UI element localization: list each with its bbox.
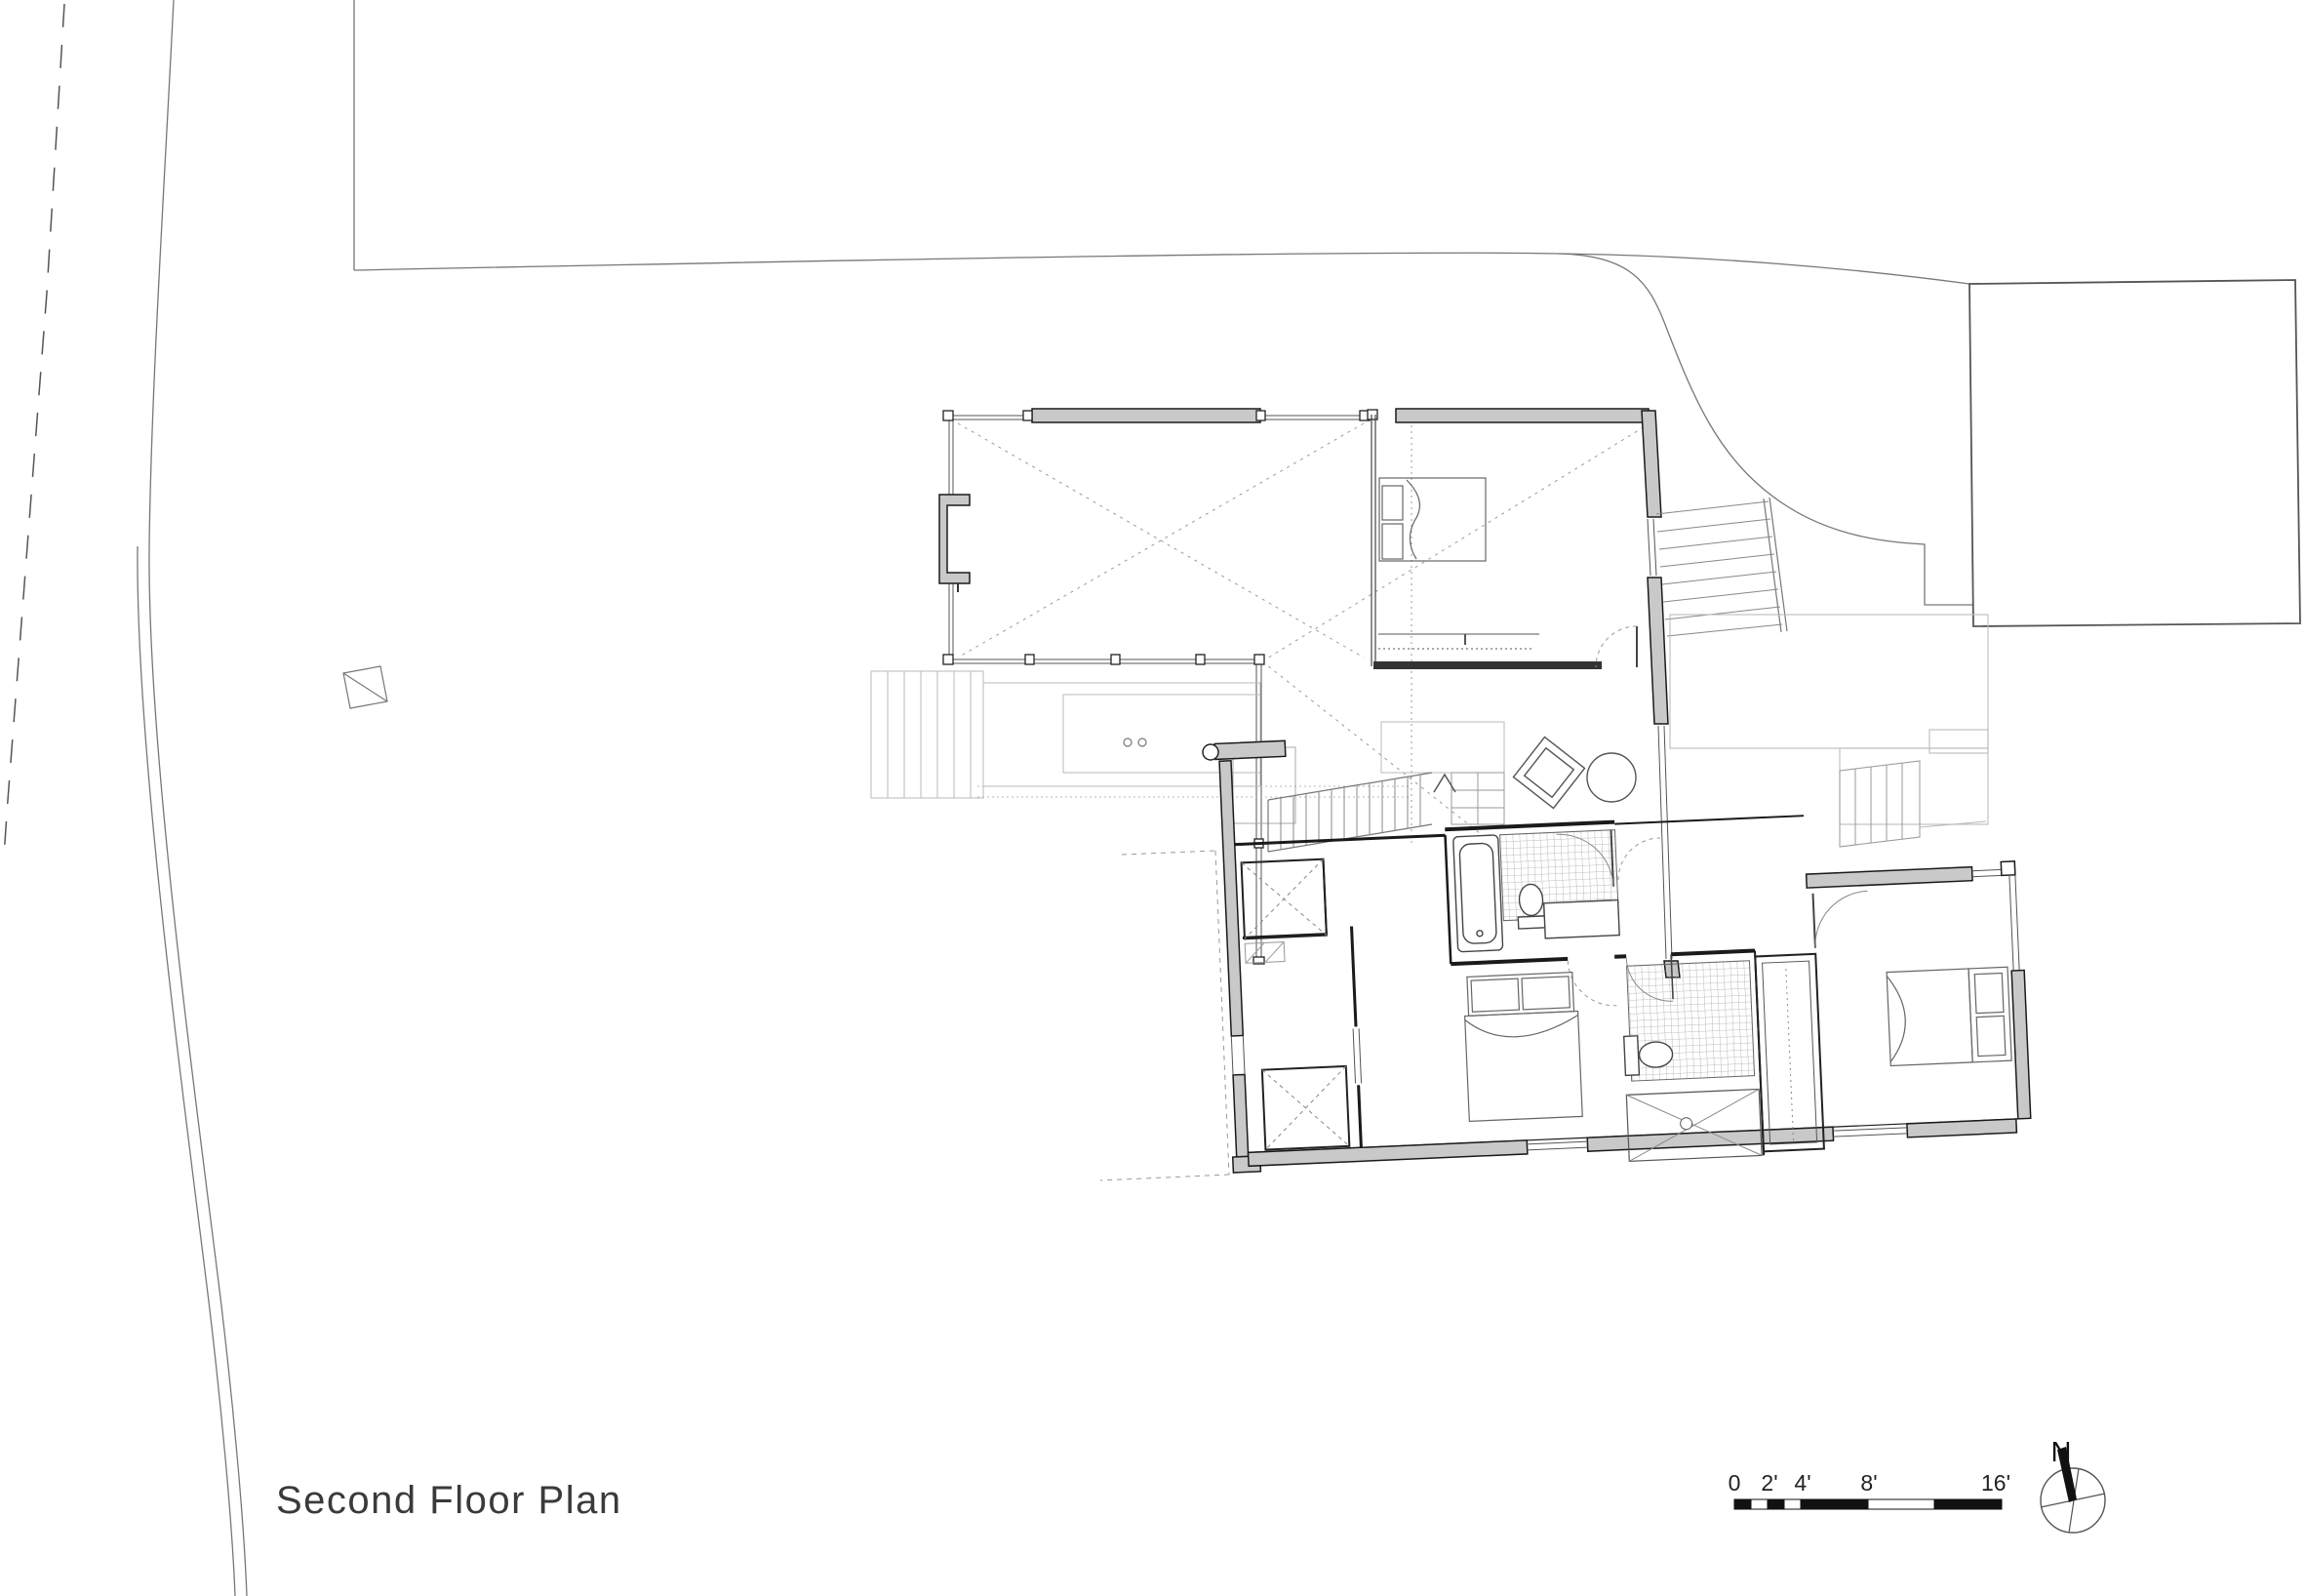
neighbor-building — [1969, 280, 2300, 626]
north-compass-icon: N — [2041, 1437, 2105, 1533]
scale-tick-4: 4' — [1794, 1470, 1810, 1496]
lower-wing — [1214, 709, 2032, 1178]
property-line-dashed — [4, 4, 64, 857]
road-edge-1 — [149, 0, 247, 1596]
bedroom2-door-swing — [1568, 959, 1616, 1008]
vanity — [1544, 900, 1619, 938]
skylight-icon-1 — [1242, 859, 1327, 939]
bathroom-2 — [1620, 951, 1762, 1162]
skylight-icon-2 — [1262, 1066, 1349, 1150]
bedroom3-door — [1812, 891, 1869, 947]
bed-icon — [1379, 478, 1486, 561]
bed-icon — [1463, 973, 1582, 1122]
bedroom-2 — [1462, 959, 1621, 1122]
stair-up-arrow-icon — [1434, 775, 1455, 792]
bedroom-3 — [1812, 885, 2011, 1068]
bedroom1-door — [1596, 626, 1637, 667]
scale-tick-16: 16' — [1981, 1470, 2010, 1496]
exterior-stair — [1656, 498, 1787, 636]
railing-posts — [943, 411, 1370, 964]
floor-plan-sheet: Second Floor Plan 0 2' 4' 8' 16' N — [0, 0, 2306, 1596]
bedroom1-west-wall — [1372, 415, 1375, 666]
hall-door-swing — [1618, 838, 1660, 880]
walkin-closet — [1755, 954, 1824, 1152]
roof-below-outline-east — [1670, 615, 1988, 827]
bedroom1-north-wall — [1396, 409, 1649, 422]
deck-steps — [871, 671, 1411, 798]
road-edge-2 — [138, 546, 235, 1596]
site-boundary-to-building — [1559, 254, 1969, 284]
north-label: N — [2051, 1437, 2072, 1468]
site-marker-square — [343, 666, 387, 708]
column-post — [1203, 744, 1218, 760]
fireplace-icon — [939, 495, 970, 583]
east-wall — [1642, 411, 1680, 978]
floor-plan-canvas: Second Floor Plan 0 2' 4' 8' 16' N — [0, 0, 2306, 1596]
scale-bar-blocks — [1734, 1499, 2002, 1509]
roof-dashed-lines — [958, 419, 1647, 845]
lower-walls — [1214, 709, 2032, 1178]
exterior-stair-lower — [1840, 761, 1920, 847]
bathtub-icon — [1453, 835, 1503, 952]
scale-tick-8: 8' — [1860, 1470, 1877, 1496]
table-icon — [1587, 753, 1636, 802]
deck-dot-2 — [1138, 738, 1146, 746]
roof-overhang-dashed — [1100, 851, 1229, 1180]
bedroom1-south-wall — [1373, 661, 1602, 669]
page-title: Second Floor Plan — [276, 1479, 622, 1522]
bedroom-1 — [1368, 409, 1649, 669]
chair-icon — [1514, 738, 1585, 809]
deck-wall-segment — [1032, 409, 1260, 422]
scale-tick-0: 0 — [1729, 1470, 1741, 1496]
site-context — [4, 0, 2300, 1596]
shower-icon — [1626, 1089, 1762, 1161]
bathroom-1 — [1453, 830, 1620, 952]
bed-icon — [1887, 967, 2011, 1065]
closet-bedroom1 — [1378, 634, 1539, 649]
site-boundary-north — [354, 253, 1972, 605]
scale-bar: 0 2' 4' 8' 16' — [1729, 1470, 2010, 1509]
deck-railing — [947, 415, 1369, 962]
deck-dot-1 — [1124, 738, 1132, 746]
scale-tick-2: 2' — [1761, 1470, 1777, 1496]
